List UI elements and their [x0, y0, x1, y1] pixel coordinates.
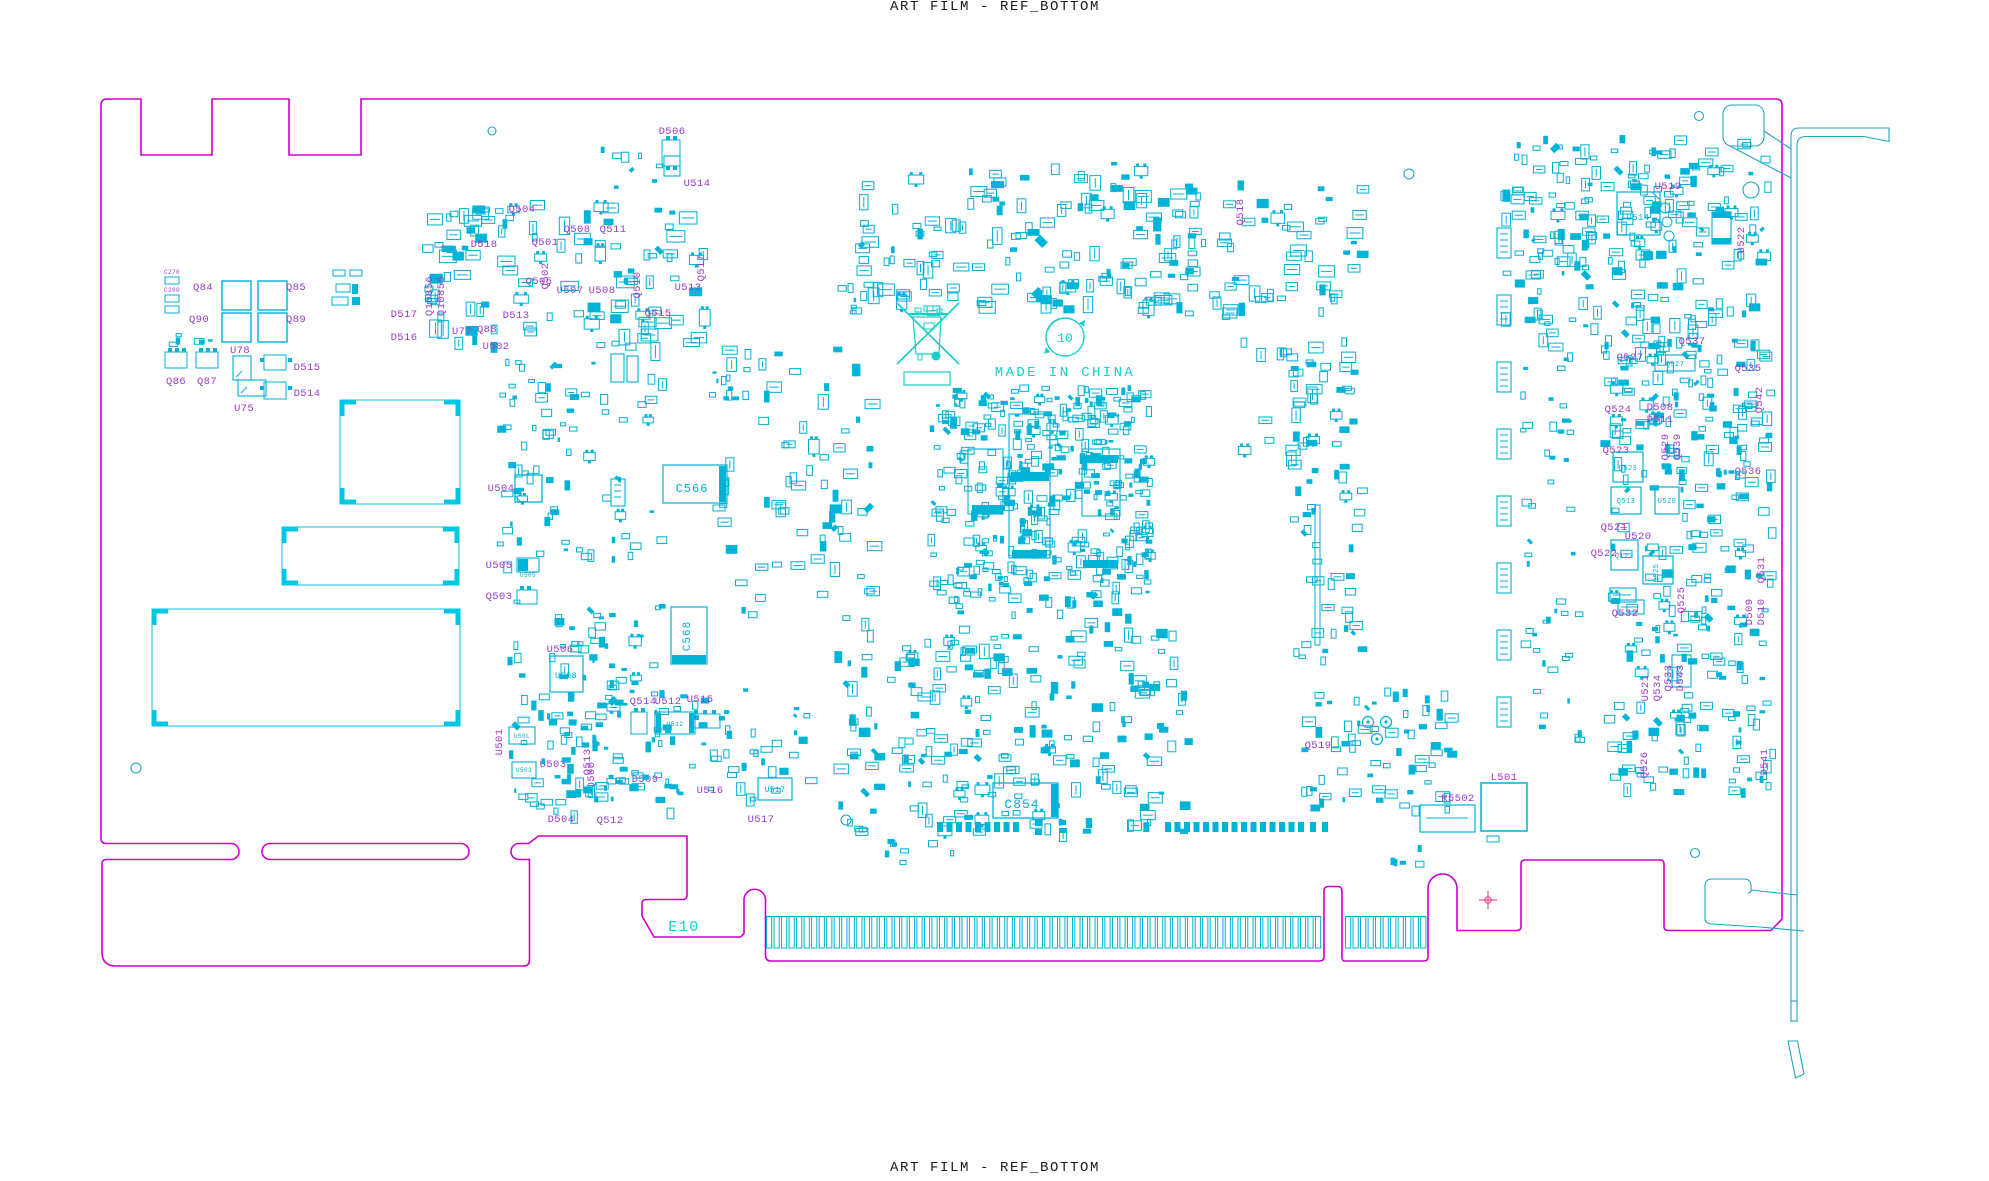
- svg-text:R5502: R5502: [1441, 793, 1475, 805]
- svg-text:D518: D518: [471, 239, 498, 251]
- svg-text:10: 10: [1057, 331, 1073, 346]
- svg-text:U513: U513: [675, 282, 702, 294]
- svg-text:Q534: Q534: [1652, 675, 1664, 702]
- svg-text:Q526: Q526: [1639, 752, 1651, 779]
- svg-text:Q514: Q514: [630, 696, 657, 708]
- svg-text:E10: E10: [668, 919, 700, 936]
- svg-text:Q525: Q525: [1676, 587, 1688, 614]
- svg-text:ART FILM - REF_BOTTOM: ART FILM - REF_BOTTOM: [890, 0, 1100, 15]
- svg-text:U512: U512: [655, 696, 682, 708]
- svg-text:ART FILM - REF_BOTTOM: ART FILM - REF_BOTTOM: [890, 1160, 1100, 1176]
- svg-text:U519: U519: [1655, 181, 1682, 193]
- svg-text:Q518: Q518: [1235, 199, 1247, 226]
- svg-text:Q513: Q513: [1617, 498, 1635, 506]
- svg-text:D543: D543: [1675, 665, 1687, 692]
- svg-text:U78: U78: [230, 345, 250, 357]
- svg-text:Q521: Q521: [1601, 522, 1628, 534]
- svg-text:Q517: Q517: [696, 255, 708, 282]
- svg-text:U517: U517: [748, 814, 775, 826]
- svg-text:U517: U517: [765, 786, 786, 795]
- svg-text:Q10856: Q10856: [424, 276, 436, 316]
- svg-text:Q88: Q88: [477, 324, 497, 336]
- svg-text:Q508: Q508: [564, 224, 591, 236]
- svg-text:Q122: Q122: [1615, 553, 1633, 561]
- svg-text:C854: C854: [1004, 797, 1039, 812]
- svg-text:U503: U503: [516, 767, 532, 774]
- svg-text:Q512: Q512: [597, 815, 624, 827]
- svg-text:U505: U505: [520, 572, 536, 579]
- svg-text:Q87: Q87: [197, 376, 217, 388]
- svg-text:U508: U508: [589, 285, 616, 297]
- svg-text:Q535: Q535: [1735, 363, 1762, 375]
- svg-text:D510: D510: [1756, 599, 1768, 626]
- svg-text:C568: C568: [682, 621, 694, 651]
- svg-text:D514: D514: [294, 388, 321, 400]
- svg-text:Q10855: Q10855: [436, 276, 448, 316]
- svg-text:Q522: Q522: [1591, 548, 1618, 560]
- svg-text:U507: U507: [557, 285, 584, 297]
- svg-text:U504: U504: [488, 483, 515, 495]
- svg-text:Q524: Q524: [1605, 404, 1632, 416]
- svg-text:D509: D509: [1744, 599, 1756, 626]
- svg-text:Q531: Q531: [1756, 557, 1768, 584]
- svg-text:U501: U501: [494, 729, 506, 756]
- svg-text:U514: U514: [684, 178, 711, 190]
- svg-text:Q525: Q525: [1653, 564, 1661, 582]
- svg-text:Q519: Q519: [1305, 740, 1332, 752]
- svg-text:Q503: Q503: [486, 591, 513, 603]
- svg-text:U50L: U50L: [514, 733, 530, 740]
- svg-text:Q513: Q513: [582, 749, 594, 776]
- svg-text:Q523: Q523: [1603, 445, 1630, 457]
- svg-text:U505: U505: [486, 560, 513, 572]
- svg-text:C280: C280: [164, 287, 180, 294]
- svg-text:Q527: Q527: [1617, 352, 1644, 364]
- svg-text:D513: D513: [503, 310, 530, 322]
- svg-text:Q527: Q527: [1666, 361, 1684, 369]
- svg-text:Q523: Q523: [1619, 465, 1637, 473]
- svg-text:D541: D541: [1759, 749, 1771, 776]
- svg-text:D515: D515: [294, 362, 321, 374]
- svg-text:D511: D511: [1647, 414, 1674, 426]
- svg-text:U520: U520: [1625, 531, 1652, 543]
- svg-text:Q533: Q533: [1663, 665, 1675, 692]
- svg-text:U516: U516: [697, 785, 724, 797]
- svg-text:D508: D508: [1647, 402, 1674, 414]
- svg-text:Q539: Q539: [1672, 434, 1684, 461]
- svg-text:L501: L501: [1491, 772, 1518, 784]
- svg-text:Q511: Q511: [600, 224, 627, 236]
- svg-text:Q90: Q90: [189, 314, 209, 326]
- svg-text:D506: D506: [659, 126, 686, 138]
- svg-text:Q85: Q85: [286, 282, 306, 294]
- svg-text:MADE IN CHINA: MADE IN CHINA: [995, 365, 1135, 381]
- svg-text:Q537: Q537: [1679, 336, 1706, 348]
- svg-text:Q504: Q504: [509, 204, 536, 216]
- svg-text:Q501: Q501: [532, 237, 559, 249]
- svg-text:Q515: Q515: [645, 308, 672, 320]
- svg-text:Q89: Q89: [286, 314, 306, 326]
- svg-text:U75: U75: [234, 403, 254, 415]
- svg-text:U502: U502: [483, 341, 510, 353]
- svg-text:C566: C566: [676, 482, 709, 496]
- svg-text:U520: U520: [1658, 498, 1676, 506]
- svg-text:D516: D516: [391, 332, 418, 344]
- svg-text:Q542: Q542: [1754, 387, 1766, 414]
- svg-text:Q84: Q84: [193, 282, 213, 294]
- svg-text:U512: U512: [666, 721, 683, 728]
- svg-text:C270: C270: [164, 269, 180, 276]
- svg-text:U521: U521: [1640, 675, 1652, 702]
- svg-text:U77: U77: [452, 326, 472, 338]
- svg-text:Q510: Q510: [632, 272, 644, 299]
- svg-text:Q86: Q86: [166, 376, 186, 388]
- svg-text:D517: D517: [391, 309, 418, 321]
- svg-text:D504: D504: [548, 814, 575, 826]
- svg-text:Q529: Q529: [1660, 434, 1672, 461]
- svg-text:U522: U522: [1736, 227, 1748, 254]
- svg-text:U514: U514: [1626, 213, 1649, 223]
- svg-text:Q505: Q505: [526, 276, 553, 288]
- svg-text:U515: U515: [687, 694, 714, 706]
- svg-text:Q532: Q532: [1612, 608, 1639, 620]
